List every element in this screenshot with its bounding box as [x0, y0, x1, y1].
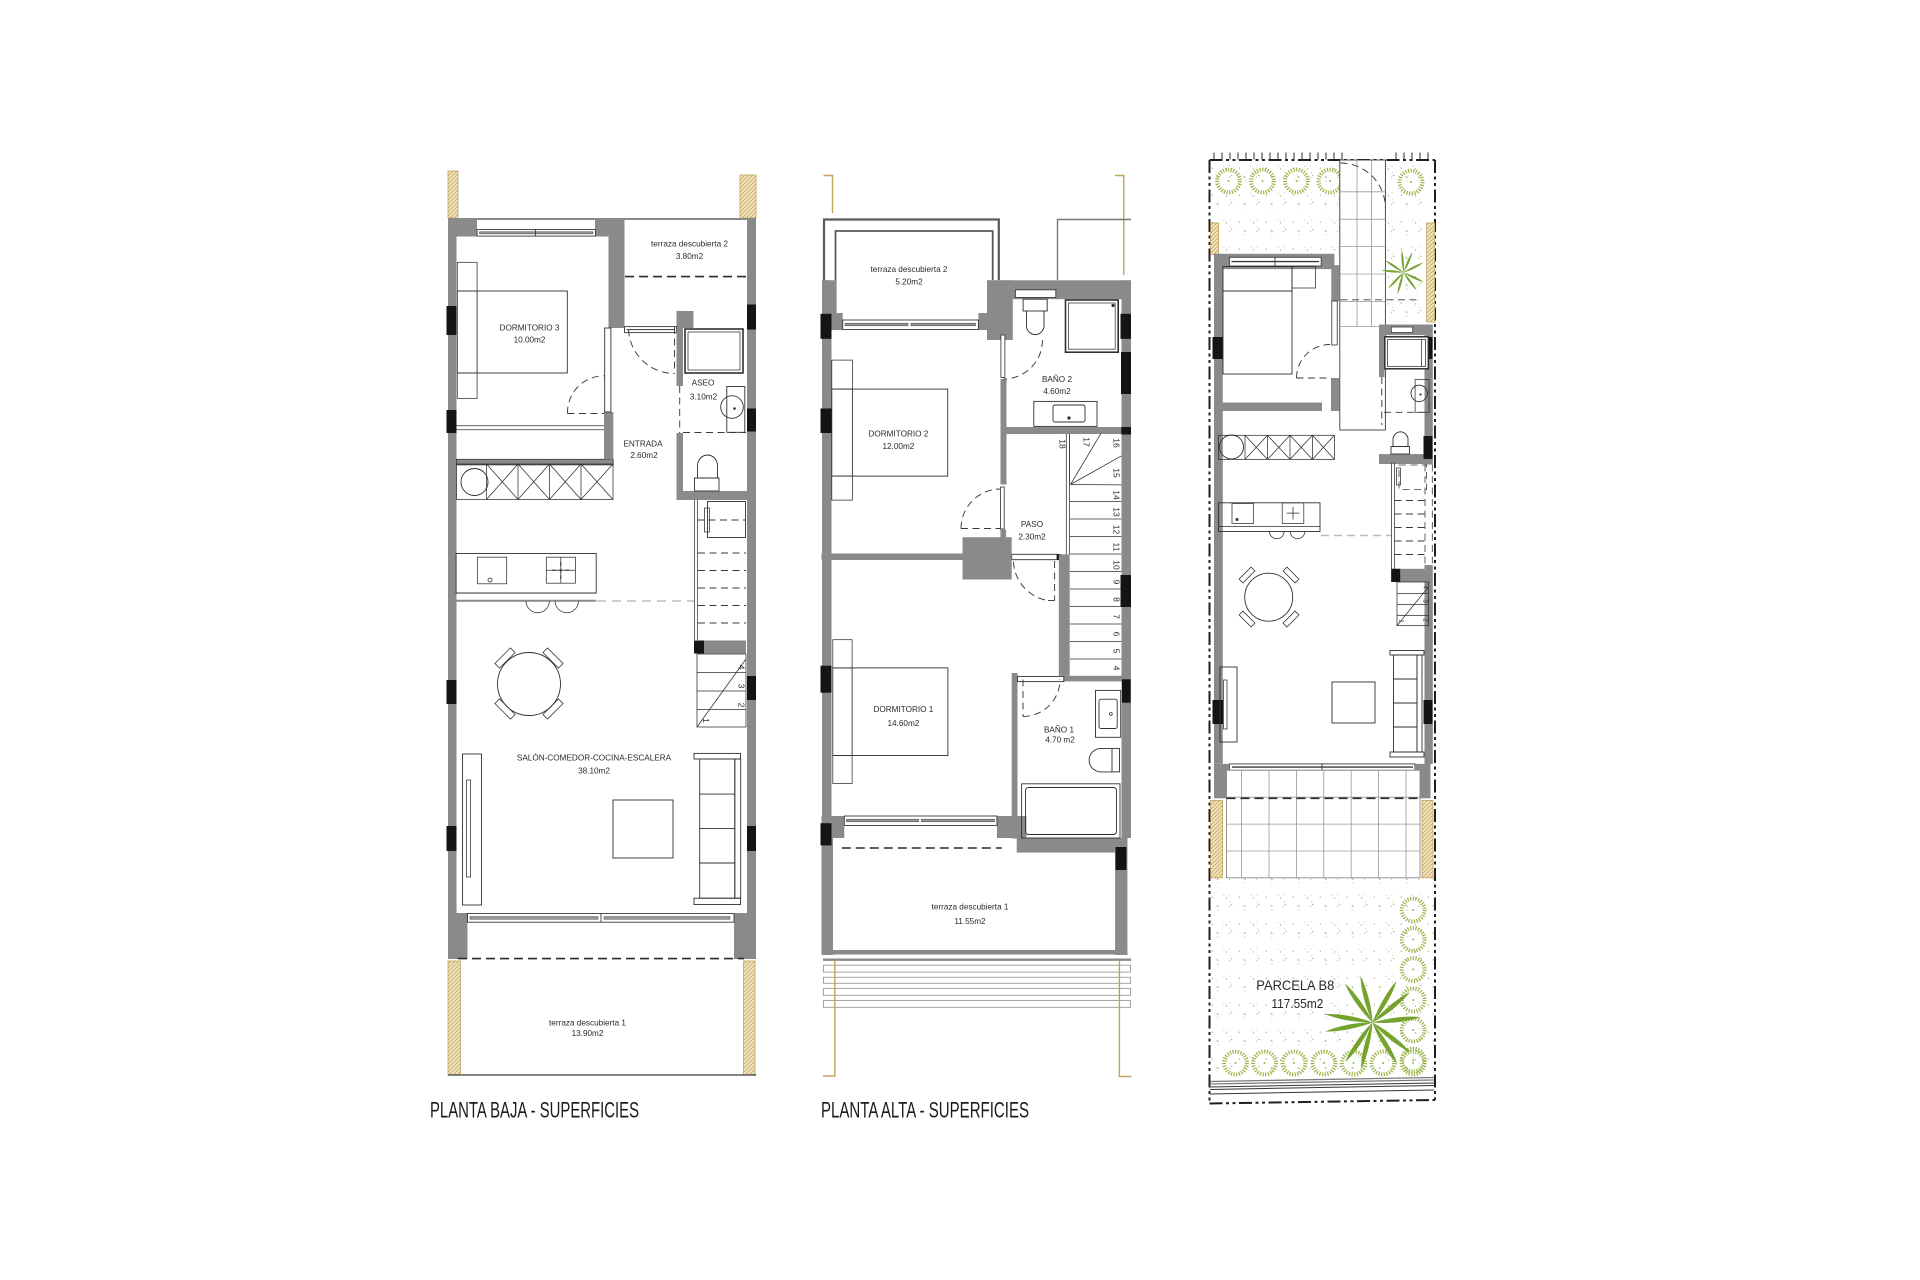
- svg-text:13.90m2: 13.90m2: [572, 1029, 604, 1038]
- svg-text:6: 6: [1112, 632, 1122, 637]
- svg-text:38.10m2: 38.10m2: [578, 767, 610, 776]
- svg-text:12.00m2: 12.00m2: [882, 442, 914, 451]
- svg-text:ASEO: ASEO: [692, 379, 715, 388]
- svg-text:BAÑO 1: BAÑO 1: [1044, 725, 1074, 735]
- svg-text:terraza descubierta 1: terraza descubierta 1: [549, 1019, 626, 1028]
- svg-text:7: 7: [1112, 614, 1122, 619]
- svg-text:terraza descubierta 2: terraza descubierta 2: [651, 239, 728, 248]
- svg-text:11: 11: [1112, 543, 1122, 552]
- svg-text:PLANTA BAJA - SUPERFICIES: PLANTA BAJA - SUPERFICIES: [430, 1098, 639, 1123]
- svg-text:14: 14: [1112, 490, 1122, 500]
- svg-text:4.70 m2: 4.70 m2: [1045, 736, 1075, 745]
- svg-text:1: 1: [701, 718, 711, 723]
- svg-text:DORMITORIO 2: DORMITORIO 2: [868, 430, 928, 439]
- svg-text:terraza descubierta 2: terraza descubierta 2: [871, 265, 948, 274]
- svg-text:14.60m2: 14.60m2: [887, 719, 919, 728]
- svg-text:4: 4: [737, 665, 747, 670]
- svg-text:12: 12: [1112, 525, 1122, 535]
- svg-text:DORMITORIO 1: DORMITORIO 1: [873, 705, 933, 714]
- svg-text:117.55m2: 117.55m2: [1271, 997, 1323, 1011]
- svg-text:3.10m2: 3.10m2: [690, 393, 718, 402]
- svg-text:PARCELA B8: PARCELA B8: [1256, 977, 1334, 993]
- svg-text:DORMITORIO 3: DORMITORIO 3: [500, 323, 560, 332]
- svg-text:BAÑO 2: BAÑO 2: [1042, 374, 1072, 384]
- svg-text:15: 15: [1112, 468, 1122, 478]
- svg-text:ENTRADA: ENTRADA: [623, 439, 663, 448]
- svg-text:SALÓN-COMEDOR-COCINA-ESCALERA: SALÓN-COMEDOR-COCINA-ESCALERA: [517, 752, 672, 762]
- svg-text:2.30m2: 2.30m2: [1018, 533, 1046, 542]
- svg-text:4: 4: [1112, 666, 1122, 671]
- svg-text:PASO: PASO: [1021, 520, 1043, 529]
- svg-text:8: 8: [1112, 597, 1122, 602]
- svg-text:11.55m2: 11.55m2: [954, 917, 986, 926]
- svg-text:17: 17: [1082, 437, 1092, 447]
- svg-text:5: 5: [1112, 649, 1122, 654]
- svg-text:2.60m2: 2.60m2: [630, 451, 658, 460]
- svg-text:2: 2: [737, 703, 747, 708]
- svg-text:18: 18: [1058, 439, 1068, 449]
- svg-text:terraza descubierta 1: terraza descubierta 1: [932, 903, 1009, 912]
- svg-text:16: 16: [1112, 438, 1122, 448]
- svg-text:3.80m2: 3.80m2: [676, 252, 704, 261]
- svg-text:9: 9: [1112, 580, 1122, 585]
- svg-text:4.60m2: 4.60m2: [1043, 387, 1071, 396]
- svg-text:3: 3: [737, 684, 747, 689]
- svg-text:5.20m2: 5.20m2: [895, 278, 923, 287]
- svg-text:13: 13: [1112, 507, 1122, 517]
- svg-text:PLANTA ALTA - SUPERFICIES: PLANTA ALTA - SUPERFICIES: [821, 1098, 1029, 1123]
- svg-text:10.00m2: 10.00m2: [514, 336, 546, 345]
- svg-text:10: 10: [1112, 560, 1122, 570]
